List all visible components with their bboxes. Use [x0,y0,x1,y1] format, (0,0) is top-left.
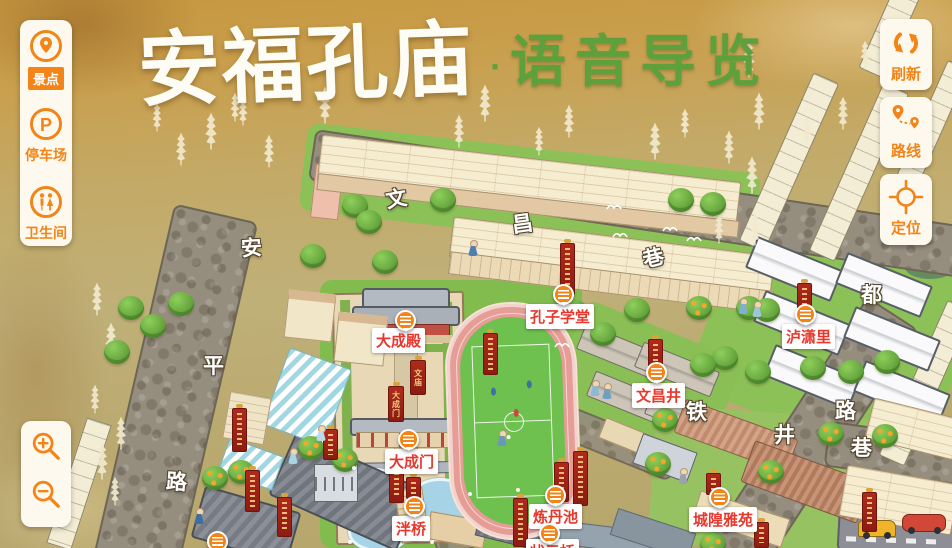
poi-label[interactable]: 泸潇里 [782,324,835,349]
poplar-tree [722,131,736,164]
dove [612,226,628,234]
tree [700,192,726,216]
car-wheel [863,532,870,539]
street-label: 铁 [686,402,707,423]
tree [668,188,694,212]
osmanthus-tree [645,452,671,476]
poplar-tree [229,93,241,122]
poi-audio-marker[interactable] [398,429,419,450]
street-label: 安 [240,237,262,259]
poi-label[interactable]: 大成殿 [372,328,425,353]
poi-audio-marker[interactable] [553,284,574,305]
poplar-tree [151,103,163,132]
shop-box [222,391,272,446]
refresh-label[interactable]: 刷新 [891,63,921,84]
water-sparkle [468,492,472,496]
person-figure [497,430,507,446]
route-icon [887,101,925,139]
map-canvas[interactable]: 文庙大成门文昌巷安平路铁井路巷都大成殿孔子学堂泸潇里文昌井大成门泮桥炼丹池城隍雅… [0,0,952,548]
tree [800,356,826,380]
poplar-tree [262,135,276,168]
poplar-tree [203,112,218,149]
refresh-button[interactable]: 刷新 [880,19,932,90]
tree [372,250,398,274]
poplar-tree [562,105,576,138]
water-sparkle [348,540,352,544]
poi-audio-marker[interactable] [646,362,667,383]
osmanthus-tree [686,296,712,320]
shop-banner [245,470,260,512]
wall-banner: 大成门 [388,386,404,422]
title-separator: · [490,46,502,88]
poi-audio-marker[interactable] [395,310,416,331]
shop-banner [483,333,498,375]
street-label: 平 [203,356,224,377]
person-figure [590,380,600,396]
tree [168,292,194,316]
poplar-tree [751,92,766,129]
poi-audio-marker[interactable] [539,523,560,544]
page-title: 安福孔庙 · 语音导览 [138,0,770,108]
toolbar-item-restroom[interactable]: 卫生间 [20,184,72,243]
tree [118,296,144,320]
parking-icon: P [28,106,64,142]
street-label: 巷 [851,438,872,459]
street-label: 路 [165,471,187,493]
person-figure [678,468,688,484]
zoom-panel [21,421,71,527]
poi-audio-marker[interactable] [404,496,425,517]
shop-banner [277,497,292,537]
wall-banner: 文庙 [410,360,426,395]
tree [874,350,900,374]
shop-banner [862,492,877,532]
poi-audio-marker[interactable] [795,304,816,325]
shop-banner [232,408,247,452]
car-wheel [934,527,941,534]
poplar-tree [836,97,850,130]
person-figure [468,240,478,256]
toolbar-item-scenic-spots[interactable]: 景点 [20,28,72,90]
poplar-tree [647,122,662,159]
tree [624,298,650,322]
locate-button[interactable]: 定位 [880,174,932,245]
zoom-out-icon[interactable] [29,477,63,511]
tree [745,360,771,384]
osmanthus-tree [758,460,784,484]
tree [356,210,382,234]
poi-audio-marker[interactable] [207,531,228,548]
osmanthus-tree [202,466,228,490]
restroom-icon [28,184,64,220]
scenic-spot-icon [28,28,64,64]
osmanthus-tree [872,424,898,448]
route-label[interactable]: 路线 [891,140,921,161]
osmanthus-tree [652,408,678,432]
tree [300,244,326,268]
person-figure [194,508,204,524]
tree [838,360,864,384]
hut [284,290,337,343]
person-figure [602,383,612,399]
car-wheel [884,532,891,539]
poplar-tree [477,84,492,121]
person-figure [752,301,762,317]
toolbar-label-parking[interactable]: 停车场 [25,145,67,165]
person-figure [288,448,298,464]
osmanthus-tree [818,422,844,446]
toolbar-item-parking[interactable]: P 停车场 [20,106,72,165]
locate-icon [887,178,925,216]
poi-audio-marker[interactable] [709,487,730,508]
person-figure [316,425,326,441]
water-sparkle [430,540,434,544]
shop-banner [573,451,588,506]
water-sparkle [352,466,356,470]
tree [104,340,130,364]
poplar-tree [679,109,691,138]
left-toolbar: 景点 P 停车场 卫生间 [20,20,72,246]
locate-label[interactable]: 定位 [891,217,921,238]
toolbar-label-restroom[interactable]: 卫生间 [25,223,67,243]
zoom-in-icon[interactable] [29,429,63,463]
poplar-tree [237,97,249,126]
refresh-icon [887,24,925,62]
street-label: 都 [861,285,882,306]
dove [662,220,678,228]
poplar-tree [317,86,332,123]
toolbar-label-scenic[interactable]: 景点 [28,67,64,90]
poi-audio-marker[interactable] [545,485,566,506]
street-label: 文 [384,187,408,211]
tree [430,188,456,212]
car-wheel [908,527,915,534]
street-label: 路 [835,401,856,422]
poi-label[interactable]: 大成门 [385,449,438,474]
route-button[interactable]: 路线 [880,97,932,168]
poplar-tree [174,133,188,166]
street-label: 井 [774,425,795,446]
dove [554,336,570,344]
tree [140,314,166,338]
person-figure [738,298,748,314]
water-sparkle [516,488,520,492]
dove [686,230,702,238]
tree [690,353,716,377]
street-label: 昌 [511,213,535,237]
dove [606,198,622,206]
svg-text:P: P [40,115,52,135]
poi-label[interactable]: 城隍雅苑 [689,507,757,532]
